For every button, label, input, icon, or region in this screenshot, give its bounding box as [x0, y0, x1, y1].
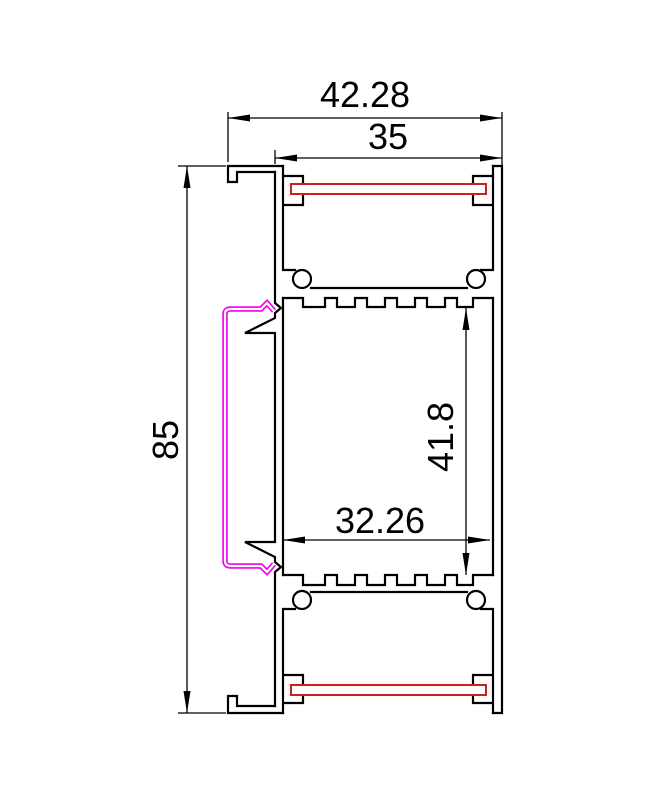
cover-clip [225, 303, 274, 572]
screw-boss-bottom-left [293, 591, 311, 609]
serration-top [283, 298, 493, 307]
profile-cross-section-drawing: 42.28 35 85 41.8 32.26 [0, 0, 650, 800]
arrow-right-35 [480, 155, 502, 162]
arrow-top-41 [463, 308, 470, 330]
arrow-left-42 [228, 115, 250, 122]
arrow-bottom-41 [463, 553, 470, 575]
screw-boss-bottom-right [467, 591, 485, 609]
arrow-left-32 [283, 537, 305, 544]
right-wall [493, 166, 502, 713]
dim-overall-width-label: 42.28 [320, 74, 410, 115]
top-strip [291, 184, 486, 194]
screw-boss-top-left [293, 270, 311, 288]
screw-boss-top-right [467, 270, 485, 288]
bottom-right-strip-pocket [473, 609, 493, 713]
arrow-bottom-85 [184, 691, 191, 713]
serration-bottom [283, 575, 493, 585]
top-left-strip-pocket [283, 166, 303, 270]
arrow-right-32 [468, 537, 490, 544]
drawing-canvas: 42.28 35 85 41.8 32.26 [0, 0, 650, 800]
dim-inner-height-label: 41.8 [420, 402, 461, 472]
left-wall [245, 172, 281, 706]
arrow-left-35 [275, 155, 297, 162]
arrow-right-42 [480, 115, 502, 122]
dim-body-width-label: 35 [368, 116, 408, 157]
dim-inner-width-label: 32.26 [335, 500, 425, 541]
cover-clip-inner [225, 303, 274, 572]
arrow-top-85 [184, 166, 191, 188]
dim-overall-height-label: 85 [145, 420, 186, 460]
top-right-strip-pocket [473, 166, 493, 270]
cover-clip-outer [225, 303, 274, 572]
bottom-strip [291, 685, 486, 695]
bottom-left-strip-pocket [283, 609, 303, 713]
